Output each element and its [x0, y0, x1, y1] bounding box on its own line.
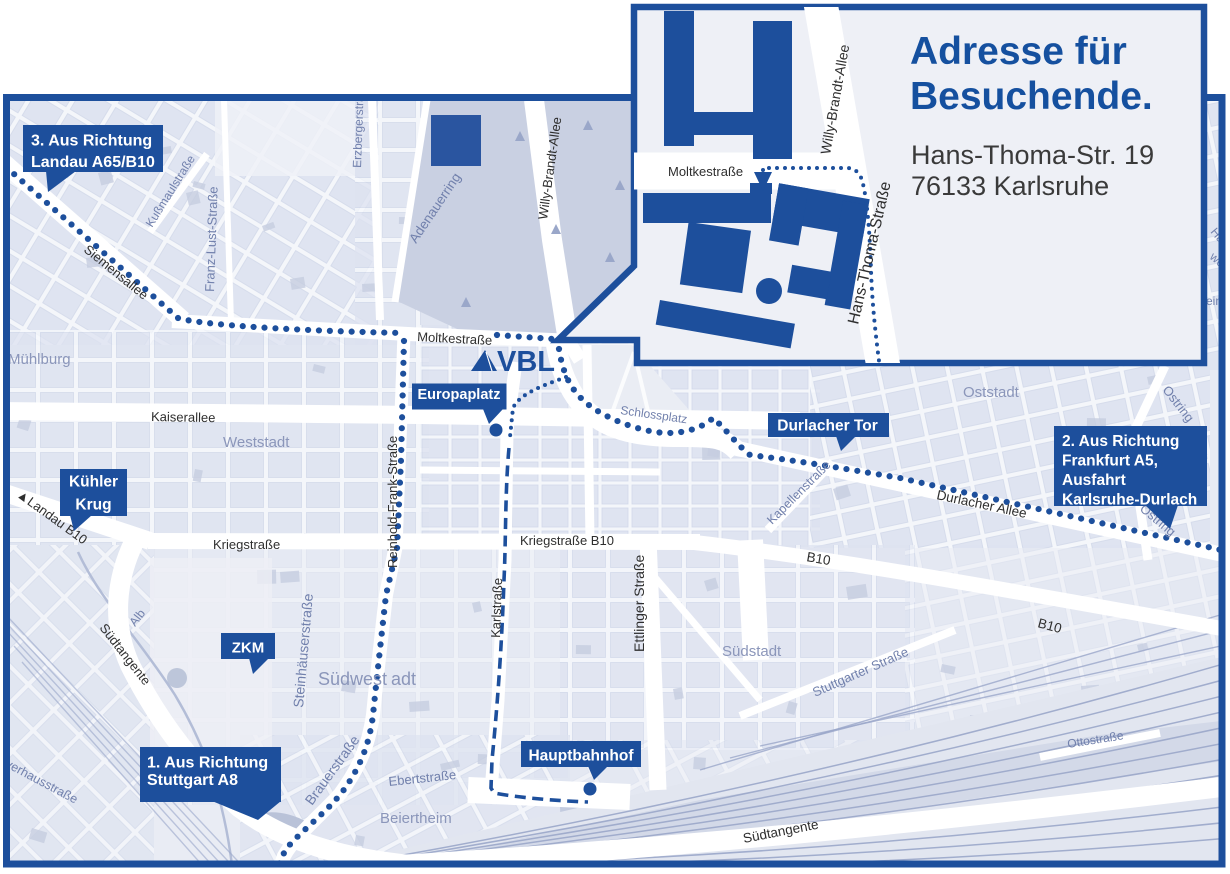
svg-text:Frankfurt A5,: Frankfurt A5,: [1062, 453, 1158, 470]
svg-text:Ausfahrt: Ausfahrt: [1062, 472, 1126, 489]
svg-text:Landau A65/B10: Landau A65/B10: [31, 154, 155, 171]
svg-text:VBL: VBL: [497, 346, 555, 378]
svg-text:Durlacher Tor: Durlacher Tor: [777, 418, 878, 435]
svg-text:Hans-Thoma-Str. 19: Hans-Thoma-Str. 19: [911, 140, 1154, 170]
svg-text:Besuchende.: Besuchende.: [910, 75, 1153, 118]
svg-text:Kühler: Kühler: [69, 474, 118, 491]
svg-text:76133 Karlsruhe: 76133 Karlsruhe: [911, 171, 1109, 201]
svg-text:3. Aus Richtung: 3. Aus Richtung: [31, 133, 152, 150]
svg-text:Stuttgart A8: Stuttgart A8: [147, 772, 238, 789]
svg-text:1. Aus Richtung: 1. Aus Richtung: [147, 755, 268, 772]
svg-text:Hauptbahnhof: Hauptbahnhof: [528, 748, 634, 765]
svg-text:Kriegstraße B10: Kriegstraße B10: [520, 533, 614, 548]
svg-text:Krug: Krug: [75, 497, 111, 514]
svg-text:Europaplatz: Europaplatz: [418, 387, 501, 403]
svg-text:Karlsruhe-Durlach: Karlsruhe-Durlach: [1062, 492, 1197, 509]
svg-text:ZKM: ZKM: [232, 640, 265, 657]
svg-text:Oststadt: Oststadt: [963, 384, 1020, 401]
svg-text:Südstadt: Südstadt: [722, 643, 782, 660]
svg-text:Weststadt: Weststadt: [223, 434, 290, 451]
svg-text:adt: adt: [391, 669, 416, 689]
svg-text:Mühlburg: Mühlburg: [8, 351, 71, 368]
svg-text:Kaiserallee: Kaiserallee: [151, 409, 216, 425]
svg-text:Südwest: Südwest: [318, 669, 387, 689]
svg-text:Adresse für: Adresse für: [910, 30, 1127, 73]
svg-text:Karlstraße: Karlstraße: [488, 578, 505, 638]
svg-text:Reinhold-Frank-Straße: Reinhold-Frank-Straße: [385, 436, 400, 568]
svg-text:Kriegstraße: Kriegstraße: [213, 537, 280, 552]
svg-text:2. Aus Richtung: 2. Aus Richtung: [1062, 433, 1179, 450]
svg-text:Beiertheim: Beiertheim: [380, 810, 452, 827]
svg-text:Moltkestraße: Moltkestraße: [668, 164, 743, 179]
svg-text:Ettlinger Straße: Ettlinger Straße: [631, 555, 647, 652]
